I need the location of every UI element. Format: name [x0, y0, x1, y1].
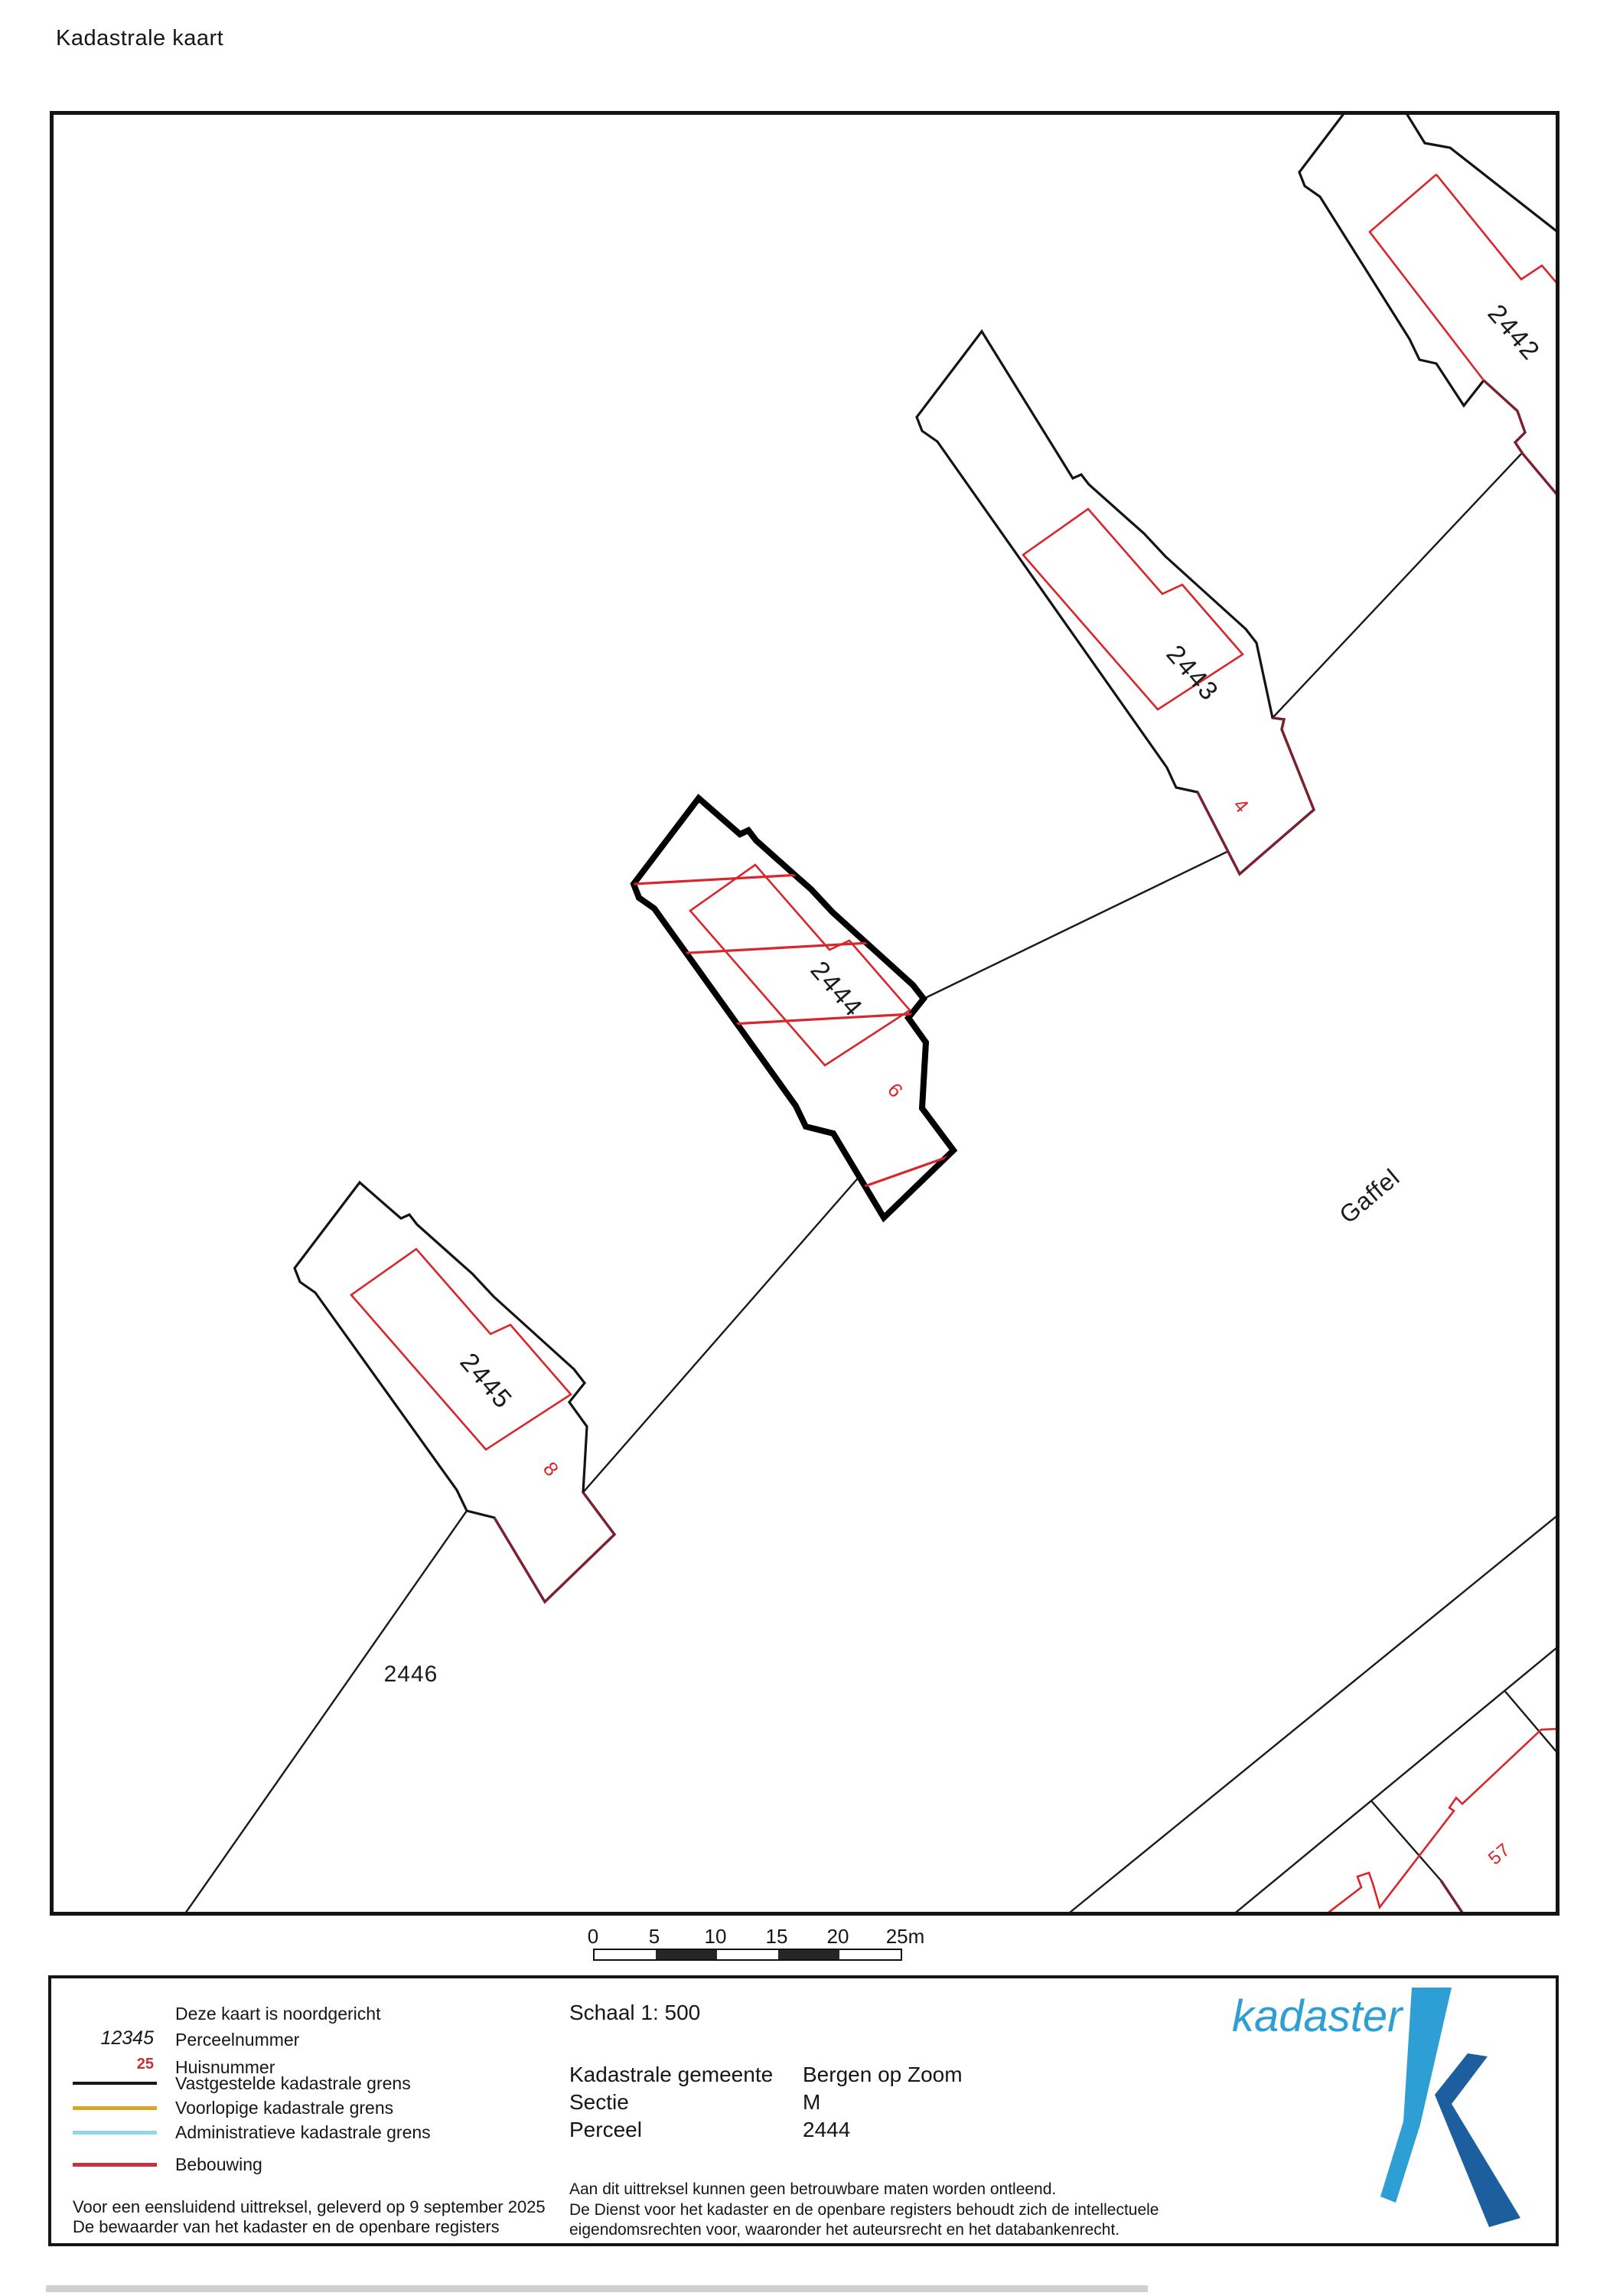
boundary-line-2445-2444 — [583, 1175, 861, 1492]
scan-artifact — [46, 2285, 1148, 2292]
parcel-2445-boundary — [295, 1182, 614, 1602]
scalebar-tick-0: 0 — [588, 1925, 598, 1949]
scalebar-segment — [839, 1950, 901, 1959]
boundary-line-2442-2443 — [1273, 454, 1521, 718]
street-edge-south — [1232, 1645, 1559, 1916]
parcel-2444-selected — [607, 798, 966, 1218]
parcel-2445 — [295, 1182, 614, 1602]
scalebar-segment — [595, 1950, 656, 1959]
street-edge-north — [1066, 1514, 1559, 1916]
building-overlap-segment — [1441, 1880, 1464, 1915]
parcel-2443-boundary — [917, 331, 1314, 874]
kadaster-extract-page: { "title": "Kadastrale kaart", "map": { … — [0, 0, 1623, 2296]
scalebar-segment — [717, 1950, 778, 1959]
scalebar-tick-25m: 25m — [886, 1925, 925, 1949]
boundary-segment-southeast-2 — [1505, 1691, 1557, 1753]
map-area: 2442 2443 2444 2445 2446 4 6 8 57 Gaffel — [50, 111, 1559, 1916]
scalebar-tick-15: 15 — [766, 1925, 788, 1949]
kadaster-logo-mark — [51, 1978, 1556, 2243]
footer-box: Deze kaart is noordgericht 12345 Perceel… — [48, 1975, 1559, 2246]
scalebar-tick-5: 5 — [649, 1925, 660, 1949]
map-canvas — [50, 111, 1559, 1916]
page-title: Kadastrale kaart — [56, 26, 223, 51]
parcel-2442-building-overlap — [1484, 380, 1559, 497]
parcel-2443 — [917, 331, 1314, 874]
scalebar-tick-10: 10 — [705, 1925, 727, 1949]
boundary-line-2446-2445 — [184, 1511, 467, 1916]
scalebar-segment — [778, 1950, 839, 1959]
scalebar-bar — [593, 1949, 902, 1961]
parcel-2442-boundary-ne — [1403, 111, 1559, 233]
scalebar-segment — [656, 1950, 717, 1959]
parcel-2442 — [1299, 111, 1559, 497]
parcel-2442-boundary — [1299, 111, 1484, 406]
parcel-2444-boundary — [634, 798, 953, 1218]
logo-mark-dark-chevron — [1435, 2053, 1520, 2227]
building-57 — [1325, 1729, 1557, 1915]
parcel-label-2446: 2446 — [384, 1662, 438, 1688]
scalebar-tick-20: 20 — [827, 1925, 849, 1949]
